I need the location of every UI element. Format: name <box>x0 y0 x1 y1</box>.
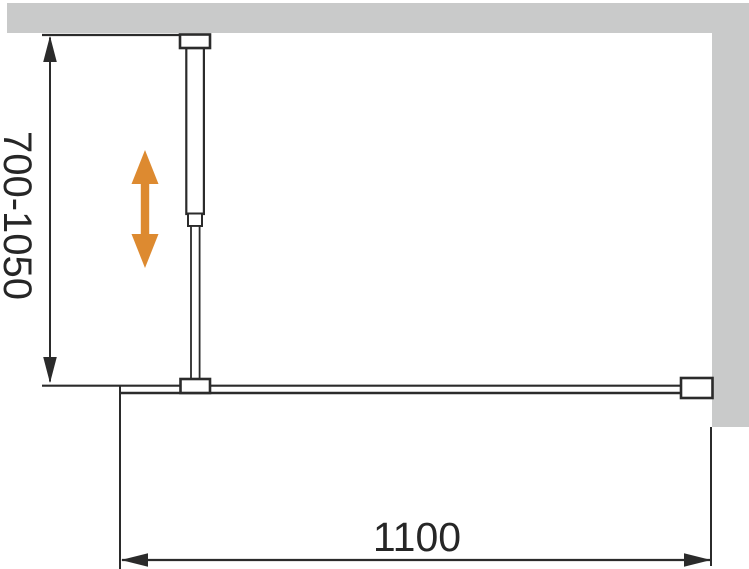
installation-diagram: 700-1050 1100 <box>0 0 749 569</box>
wall-top <box>7 3 749 33</box>
support-bar-lower-tube <box>191 226 200 380</box>
wall-profile-block <box>681 378 713 398</box>
height-dimension-arrow-up-icon <box>43 36 57 62</box>
adjustability-arrow-head-down <box>132 234 159 268</box>
height-dimension-arrow-down-icon <box>43 357 57 383</box>
width-dimension-arrow-right-icon <box>684 553 711 567</box>
wall-right <box>712 3 749 427</box>
support-bar-joint <box>188 214 202 227</box>
wall-mount-bracket <box>180 35 210 49</box>
support-bar <box>180 35 210 394</box>
adjustability-arrow-icon <box>132 150 159 268</box>
width-label: 1100 <box>373 514 461 560</box>
width-dimension-arrow-left-icon <box>121 553 148 567</box>
height-range-label: 700-1050 <box>0 131 39 300</box>
adjustability-arrow-head-up <box>132 150 159 184</box>
glass-clamp-bracket <box>181 379 211 393</box>
adjustability-arrow-shaft <box>141 178 149 240</box>
support-bar-upper-tube <box>186 48 204 214</box>
diagram-canvas: 700-1050 1100 <box>0 0 749 569</box>
